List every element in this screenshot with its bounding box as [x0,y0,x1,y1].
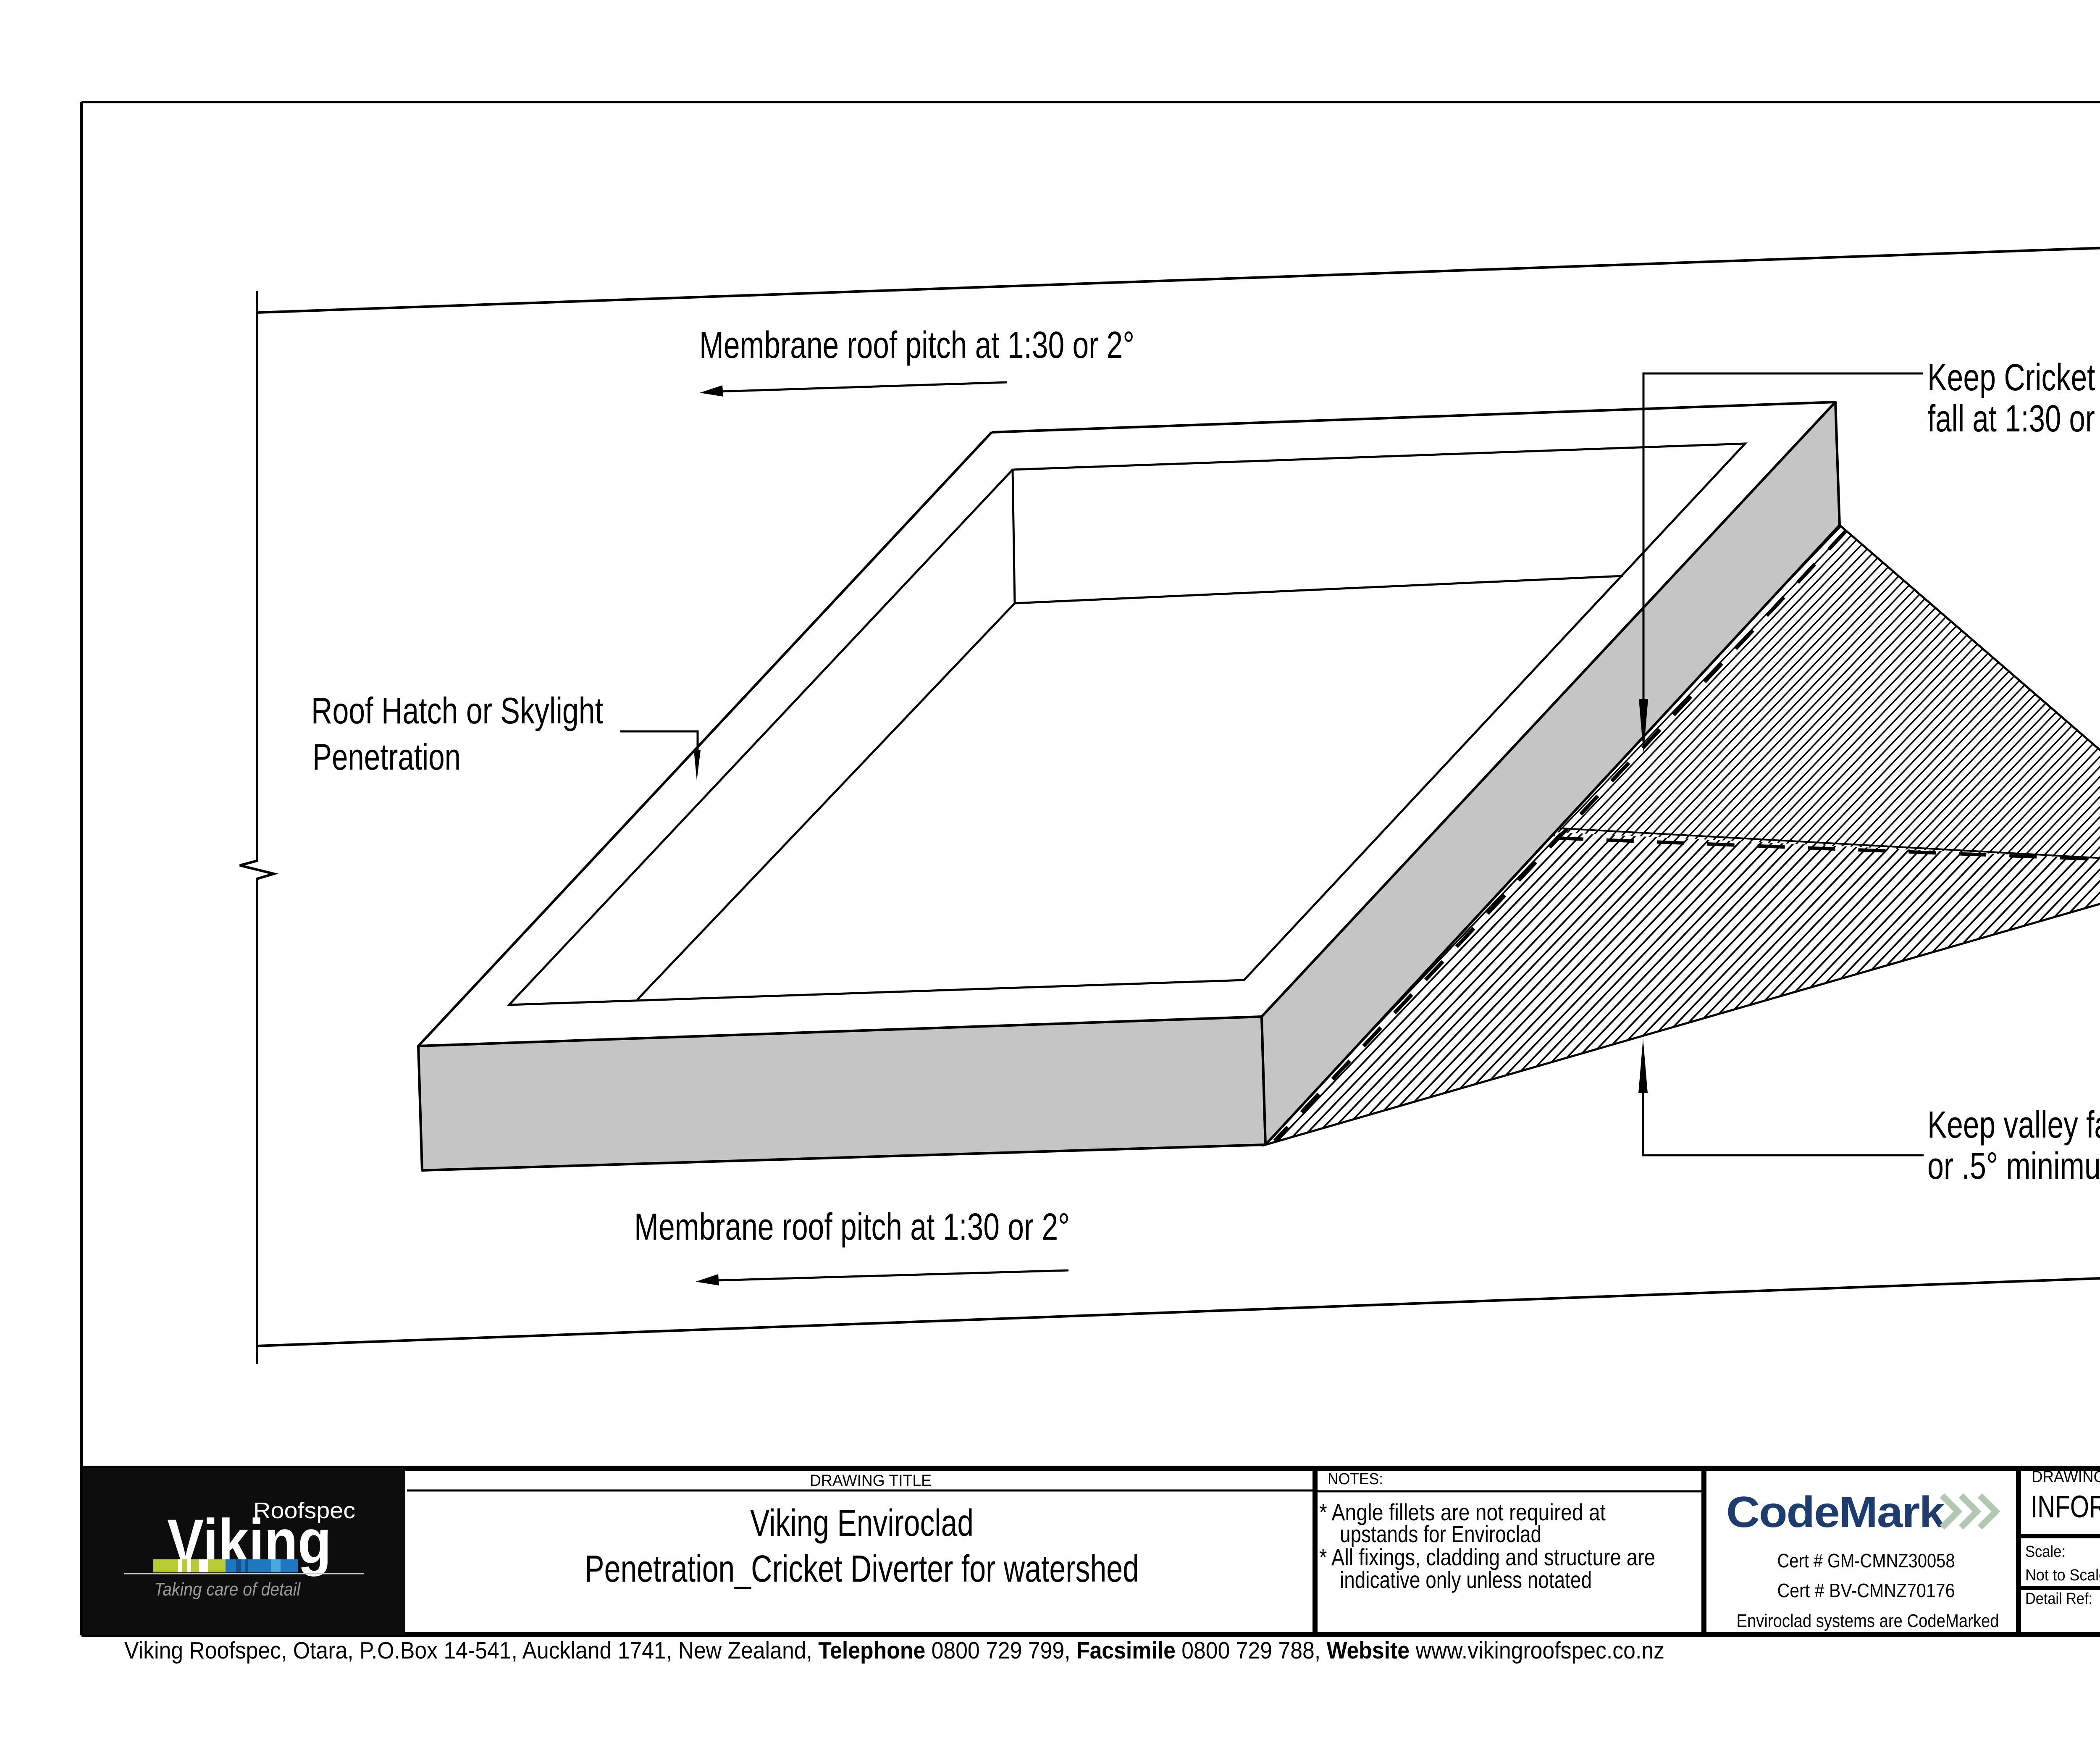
svg-text:Viking Roofspec, Otara, P.O.Bo: Viking Roofspec, Otara, P.O.Box 14-541, … [124,1637,1664,1664]
svg-text:Penetration_Cricket Diverter f: Penetration_Cricket Diverter for watersh… [585,1548,1139,1590]
svg-text:NOTES:: NOTES: [1328,1470,1383,1488]
svg-text:Membrane roof pitch at 1:30 or: Membrane roof pitch at 1:30 or 2° [634,1206,1070,1248]
svg-text:Cert # BV-CMNZ70176: Cert # BV-CMNZ70176 [1777,1580,1955,1601]
svg-text:Keep Cricket / Diverter: Keep Cricket / Diverter [1927,357,2100,399]
svg-text:Taking care of detail: Taking care of detail [154,1579,301,1600]
svg-text:Not to Scale: Not to Scale [2025,1567,2100,1584]
svg-text:Scale:: Scale: [2025,1543,2066,1561]
svg-text:fall at 1:30 or 2°: fall at 1:30 or 2° [1927,398,2100,440]
svg-text:Enviroclad systems are CodeMar: Enviroclad systems are CodeMarked [1737,1611,1999,1631]
svg-text:DRAWING TITLE: DRAWING TITLE [810,1472,932,1490]
svg-text:Membrane roof pitch at 1:30 or: Membrane roof pitch at 1:30 or 2° [699,324,1134,366]
svg-text:CodeMark: CodeMark [1726,1488,1945,1537]
svg-text:Detail Ref:: Detail Ref: [2025,1590,2092,1608]
svg-text:INFORMATION ONLY: INFORMATION ONLY [2031,1489,2100,1524]
svg-text:Roof Hatch or Skylight: Roof Hatch or Skylight [311,690,603,731]
svg-text:Viking Enviroclad: Viking Enviroclad [750,1502,974,1544]
svg-text:Penetration: Penetration [312,736,461,778]
svg-text:DRAWING: DRAWING [2032,1468,2100,1486]
svg-text:or .5° minimum: or .5° minimum [1927,1145,2100,1187]
svg-text:upstands for Enviroclad: upstands for Enviroclad [1340,1521,1541,1547]
svg-text:Cert # GM-CMNZ30058: Cert # GM-CMNZ30058 [1777,1550,1955,1572]
svg-text:indicative only unless notated: indicative only unless notated [1340,1567,1592,1593]
svg-text:Keep valley fall at 1:100: Keep valley fall at 1:100 [1927,1104,2100,1146]
